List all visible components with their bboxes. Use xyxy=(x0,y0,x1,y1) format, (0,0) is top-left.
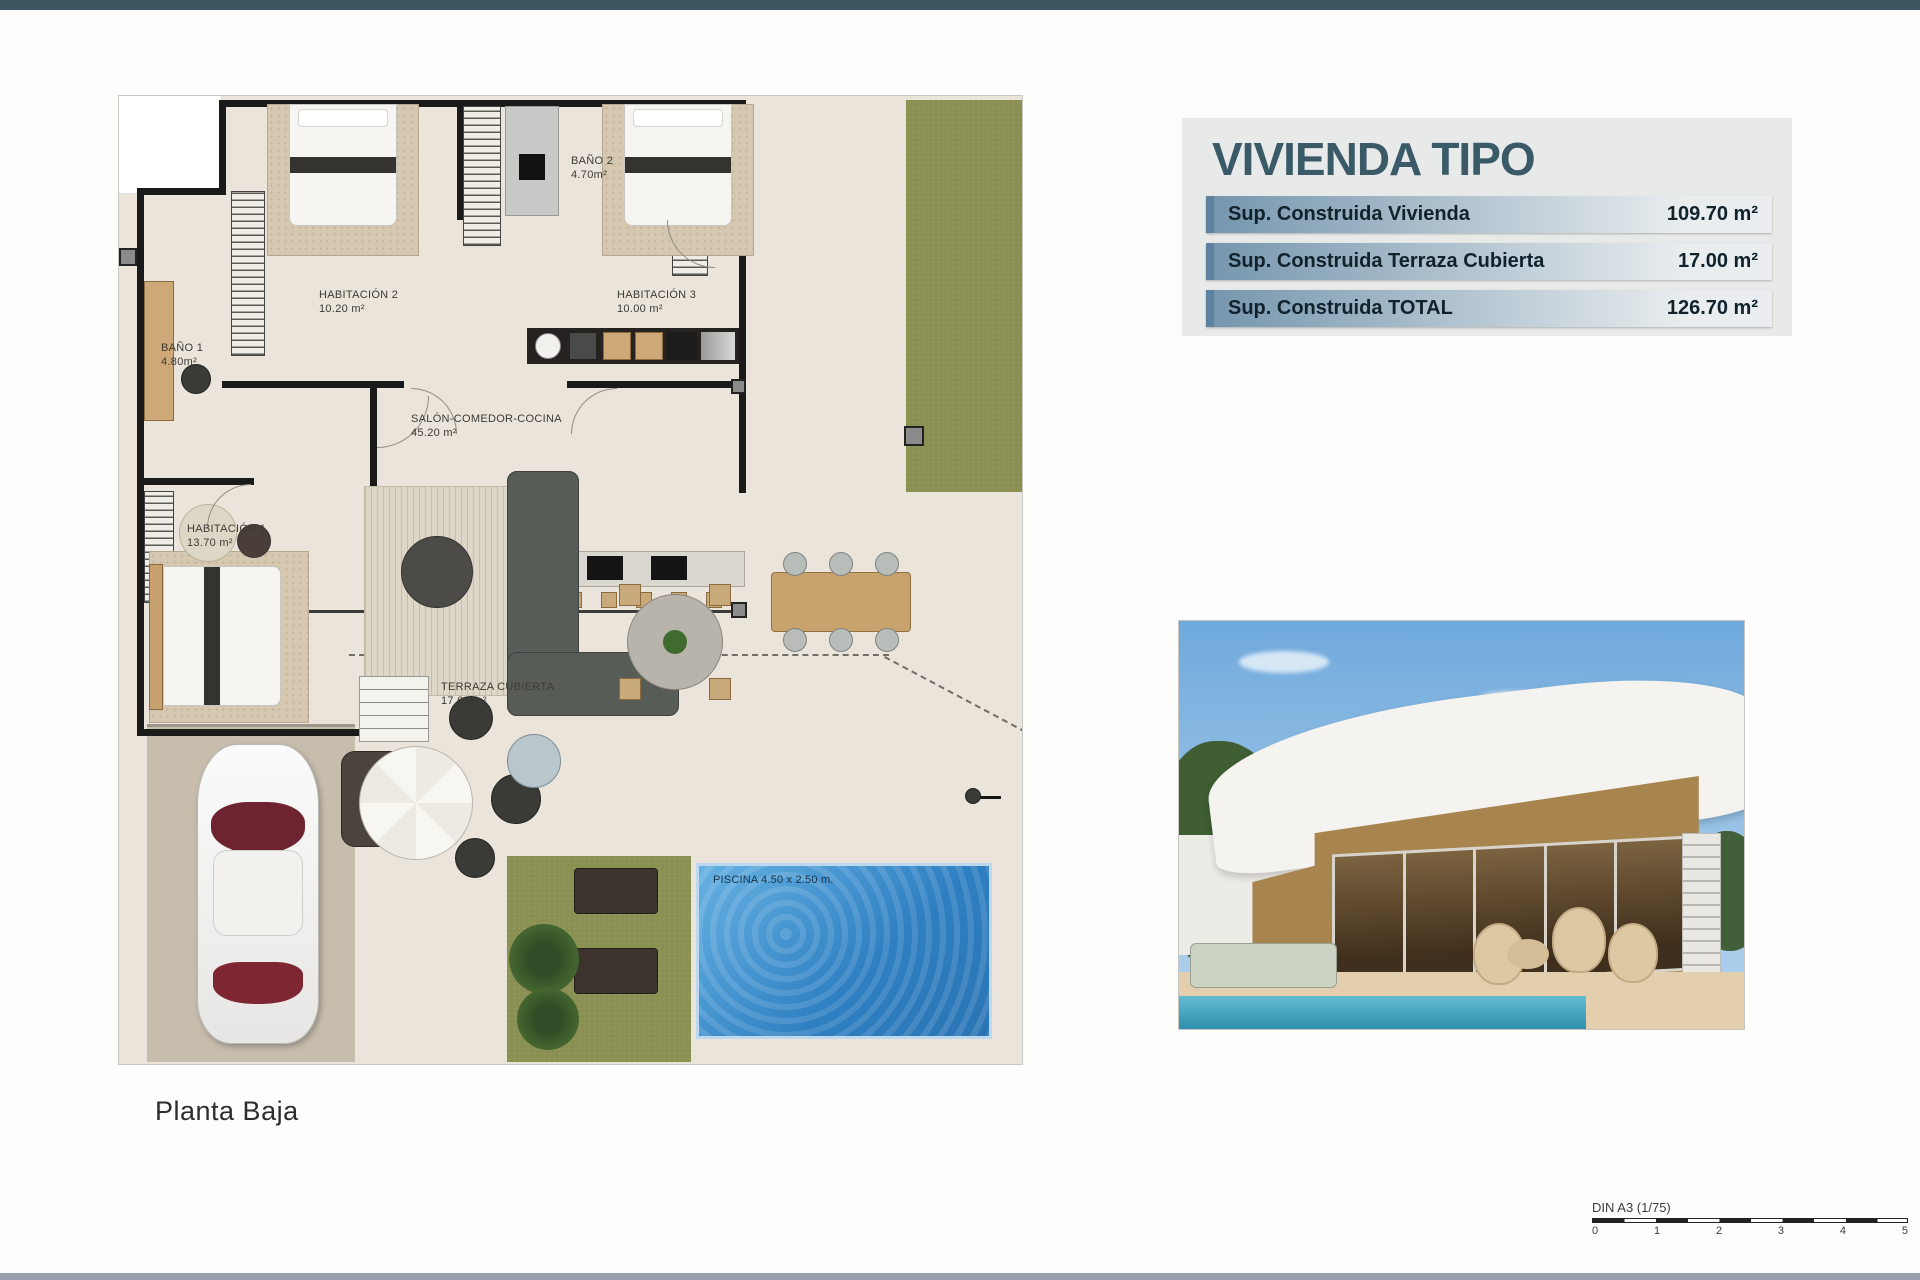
wicker-chair xyxy=(1552,907,1606,973)
duvet-fold xyxy=(204,567,220,705)
scale-tick: 3 xyxy=(1778,1225,1784,1237)
chair xyxy=(875,628,899,652)
column xyxy=(731,379,746,394)
page-title: VIVIENDA TIPO xyxy=(1212,132,1535,186)
scale-tick: 4 xyxy=(1840,1225,1846,1237)
swimming-pool: PISCINA 4.50 x 2.50 m. xyxy=(696,863,992,1039)
wall-bath1-bottom xyxy=(137,478,254,485)
summary-row-value: 126.70 m² xyxy=(1667,297,1758,320)
room-name: HABITACIÓN 1 xyxy=(187,522,266,536)
wall-bedrooms-bottom-right xyxy=(567,381,746,388)
summary-row: Sup. Construida Vivienda 109.70 m² xyxy=(1206,196,1772,233)
room-name: HABITACIÓN 3 xyxy=(617,288,696,302)
outdoor-chair xyxy=(619,678,641,700)
column xyxy=(904,426,924,446)
car-icon xyxy=(197,744,319,1044)
wall-left-step-vertical xyxy=(219,100,226,195)
pouf xyxy=(455,838,495,878)
headboard xyxy=(149,564,163,710)
summary-row-value: 109.70 m² xyxy=(1667,203,1758,226)
cabinet xyxy=(603,332,631,360)
summary-panel: VIVIENDA TIPO Sup. Construida Vivienda 1… xyxy=(1182,118,1792,336)
duvet-fold xyxy=(290,157,396,173)
hob-icon xyxy=(667,332,697,360)
scale-strip xyxy=(1592,1218,1908,1223)
bottom-accent-bar xyxy=(0,1273,1920,1280)
scale-tick: 5 xyxy=(1902,1225,1908,1237)
oven-icon xyxy=(569,332,597,360)
wicker-chair xyxy=(1608,923,1658,983)
pool-water-texture xyxy=(699,866,989,1036)
summary-row-label: Sup. Construida TOTAL xyxy=(1228,297,1453,320)
wall-bottom-bedroom1 xyxy=(137,729,377,736)
room-area: 10.20 m² xyxy=(319,302,398,316)
table-plant xyxy=(663,630,687,654)
summary-row-label: Sup. Construida Terraza Cubierta xyxy=(1228,250,1544,273)
column xyxy=(119,248,137,266)
wall-left-step-horizontal xyxy=(137,188,226,195)
pool-shower xyxy=(965,788,981,804)
scale-bar: DIN A3 (1/75) 0 1 2 3 4 5 xyxy=(1592,1200,1910,1237)
top-accent-bar xyxy=(0,0,1920,10)
wardrobe xyxy=(231,191,265,356)
glass-pane xyxy=(1335,854,1403,986)
bar-stool xyxy=(601,592,617,608)
palm-tree-icon xyxy=(517,988,579,1050)
wall-left-outer xyxy=(137,188,144,736)
pillow xyxy=(298,109,387,127)
villa-photo xyxy=(1178,620,1745,1030)
room-name: TERRAZA CUBIERTA xyxy=(441,680,554,694)
bed-icon xyxy=(289,104,397,226)
fridge-icon xyxy=(701,332,735,360)
door-swing xyxy=(571,388,617,434)
floor-plan: PISCINA 4.50 x 2.50 m. xyxy=(118,95,1023,1065)
outdoor-chair xyxy=(709,678,731,700)
parasol-icon xyxy=(359,746,473,860)
plan-caption: Planta Baja xyxy=(155,1096,299,1127)
shower-drain xyxy=(519,154,545,180)
summary-row: Sup. Construida Terraza Cubierta 17.00 m… xyxy=(1206,243,1772,280)
room-area: 10.00 m² xyxy=(617,302,696,316)
summary-row-value: 17.00 m² xyxy=(1678,250,1758,273)
room-label-bano-1: BAÑO 1 4.80m² xyxy=(161,341,203,370)
plot-dashed-boundary xyxy=(884,656,1022,738)
room-label-habitacion-2: HABITACIÓN 2 10.20 m² xyxy=(319,288,398,317)
fire-pit-table xyxy=(507,734,561,788)
wall-bedrooms-bottom-left xyxy=(222,381,404,388)
photo-pool-water xyxy=(1179,996,1586,1029)
room-area: 4.80m² xyxy=(161,355,203,369)
scale-label: DIN A3 (1/75) xyxy=(1592,1200,1910,1215)
column xyxy=(731,602,747,618)
room-name: SALÓN-COMEDOR-COCINA xyxy=(411,412,562,426)
room-name: BAÑO 2 xyxy=(571,154,613,168)
coffee-table xyxy=(401,536,473,608)
room-label-habitacion-3: HABITACIÓN 3 10.00 m² xyxy=(617,288,696,317)
sun-lounger xyxy=(574,948,658,994)
outdoor-table xyxy=(1507,939,1549,969)
chair xyxy=(829,552,853,576)
pillow xyxy=(633,109,722,127)
washer-icon xyxy=(535,333,561,359)
room-label-bano-2: BAÑO 2 4.70m² xyxy=(571,154,613,183)
bed-icon xyxy=(624,104,732,226)
dining-table xyxy=(771,572,911,632)
wardrobe xyxy=(463,106,501,246)
duvet-fold xyxy=(625,157,731,173)
cooktop xyxy=(587,556,623,580)
sun-lounger xyxy=(574,868,658,914)
summary-row: Sup. Construida TOTAL 126.70 m² xyxy=(1206,290,1772,327)
palm-tree-icon xyxy=(509,924,579,994)
pool-label: PISCINA 4.50 x 2.50 m. xyxy=(713,874,834,886)
scale-tick: 0 xyxy=(1592,1225,1598,1237)
room-name: BAÑO 1 xyxy=(161,341,203,355)
summary-row-label: Sup. Construida Vivienda xyxy=(1228,203,1470,226)
room-area: 13.70 m² xyxy=(187,536,266,550)
room-label-habitacion-1: HABITACIÓN 1 13.70 m² xyxy=(187,522,266,551)
outdoor-sofa xyxy=(1190,943,1337,988)
room-area: 4.70m² xyxy=(571,168,613,182)
cabinet xyxy=(635,332,663,360)
cooktop xyxy=(651,556,687,580)
chair xyxy=(875,552,899,576)
bed-icon xyxy=(163,566,281,706)
car-windshield xyxy=(211,802,305,854)
chair xyxy=(829,628,853,652)
scale-tick: 2 xyxy=(1716,1225,1722,1237)
car-roof xyxy=(213,850,303,936)
cloud xyxy=(1239,651,1329,673)
room-label-salon: SALÓN-COMEDOR-COCINA 45.20 m² xyxy=(411,412,562,441)
room-area: 45.20 m² xyxy=(411,426,562,440)
room-name: HABITACIÓN 2 xyxy=(319,288,398,302)
outdoor-chair xyxy=(709,584,731,606)
stairs xyxy=(359,676,429,742)
chair xyxy=(783,552,807,576)
glass-pane xyxy=(1405,850,1473,982)
plan-margin-notch xyxy=(119,96,222,194)
car-rear-window xyxy=(213,962,303,1004)
room-label-terraza: TERRAZA CUBIERTA 17.00 m² xyxy=(441,680,554,709)
scale-ticks: 0 1 2 3 4 5 xyxy=(1592,1225,1908,1237)
floor-plan-canvas: PISCINA 4.50 x 2.50 m. xyxy=(119,96,1022,1064)
chair xyxy=(783,628,807,652)
outdoor-chair xyxy=(619,584,641,606)
room-area: 17.00 m² xyxy=(441,694,554,708)
scale-tick: 1 xyxy=(1654,1225,1660,1237)
